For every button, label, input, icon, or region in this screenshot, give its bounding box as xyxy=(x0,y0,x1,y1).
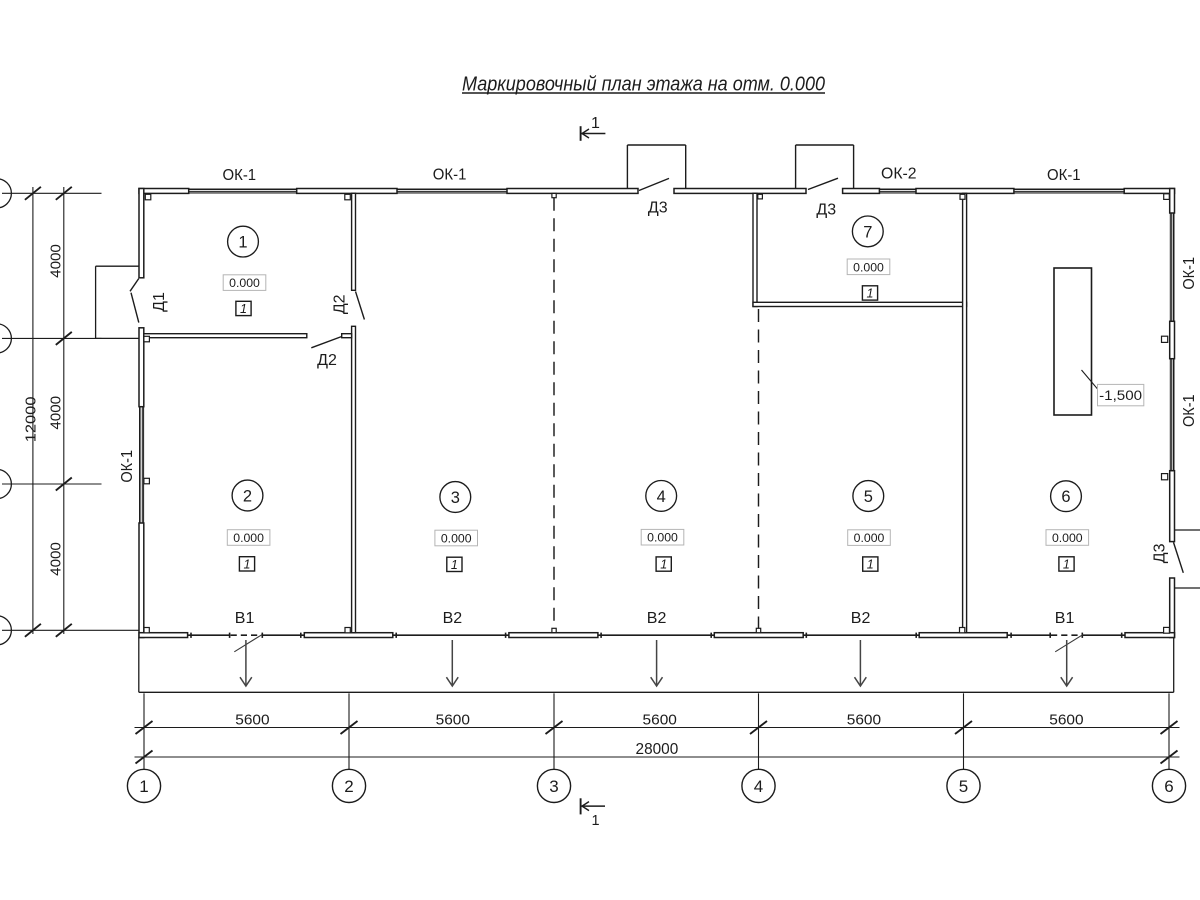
svg-text:1: 1 xyxy=(451,558,458,572)
svg-text:5600: 5600 xyxy=(235,711,269,728)
svg-text:6: 6 xyxy=(1164,777,1173,796)
svg-text:ОК-1: ОК-1 xyxy=(119,450,136,483)
svg-text:ОК-2: ОК-2 xyxy=(881,166,917,183)
svg-text:ОК-1: ОК-1 xyxy=(1047,167,1081,184)
svg-text:В2: В2 xyxy=(443,610,463,627)
svg-text:5600: 5600 xyxy=(643,711,677,728)
svg-text:Д3: Д3 xyxy=(648,200,668,217)
svg-text:1: 1 xyxy=(1063,557,1070,571)
svg-text:0.000: 0.000 xyxy=(647,531,678,545)
svg-text:1: 1 xyxy=(238,234,247,252)
svg-text:0.000: 0.000 xyxy=(441,532,472,546)
svg-text:5600: 5600 xyxy=(1049,711,1083,728)
svg-text:7: 7 xyxy=(863,223,872,241)
svg-text:3: 3 xyxy=(549,777,558,796)
svg-text:12000: 12000 xyxy=(23,397,39,443)
svg-text:-1,500: -1,500 xyxy=(1099,388,1142,403)
svg-text:5: 5 xyxy=(864,488,873,506)
svg-text:ОК-1: ОК-1 xyxy=(223,167,257,184)
svg-text:4: 4 xyxy=(754,777,763,796)
svg-text:1: 1 xyxy=(660,558,667,572)
svg-text:ОК-1: ОК-1 xyxy=(433,167,467,184)
svg-text:Д3: Д3 xyxy=(1151,543,1168,563)
svg-text:В2: В2 xyxy=(647,610,667,627)
svg-text:1: 1 xyxy=(139,777,148,796)
svg-text:Д3: Д3 xyxy=(816,202,836,219)
svg-text:1: 1 xyxy=(867,558,874,572)
svg-text:1: 1 xyxy=(240,302,247,316)
svg-text:0.000: 0.000 xyxy=(229,276,260,290)
svg-text:ОК-1: ОК-1 xyxy=(1181,394,1198,427)
svg-text:1: 1 xyxy=(591,813,599,829)
svg-text:В2: В2 xyxy=(851,610,871,627)
svg-text:1: 1 xyxy=(591,115,600,132)
svg-text:0.000: 0.000 xyxy=(233,531,264,545)
svg-text:4000: 4000 xyxy=(48,244,64,278)
svg-text:2: 2 xyxy=(344,777,353,796)
svg-text:28000: 28000 xyxy=(636,741,679,758)
svg-text:5600: 5600 xyxy=(436,711,470,728)
svg-text:3: 3 xyxy=(451,489,460,507)
svg-text:4000: 4000 xyxy=(48,396,64,430)
svg-text:4: 4 xyxy=(657,488,666,506)
svg-text:Д2: Д2 xyxy=(317,352,337,369)
svg-text:В1: В1 xyxy=(1055,610,1075,627)
svg-text:1: 1 xyxy=(243,557,250,571)
svg-text:В1: В1 xyxy=(235,610,255,627)
svg-text:4000: 4000 xyxy=(48,542,64,576)
svg-text:1: 1 xyxy=(866,286,873,300)
svg-text:ОК-1: ОК-1 xyxy=(1181,257,1198,290)
svg-text:5600: 5600 xyxy=(847,711,881,728)
svg-text:Д2: Д2 xyxy=(332,294,349,314)
svg-text:2: 2 xyxy=(243,487,252,505)
svg-text:0.000: 0.000 xyxy=(853,260,884,274)
svg-text:0.000: 0.000 xyxy=(854,531,885,545)
svg-text:Д1: Д1 xyxy=(151,292,168,312)
svg-text:Маркировочный план этажа на от: Маркировочный план этажа на отм. 0.000 xyxy=(462,73,826,96)
svg-text:5: 5 xyxy=(959,777,968,796)
svg-text:0.000: 0.000 xyxy=(1052,531,1083,545)
svg-text:6: 6 xyxy=(1061,488,1070,506)
